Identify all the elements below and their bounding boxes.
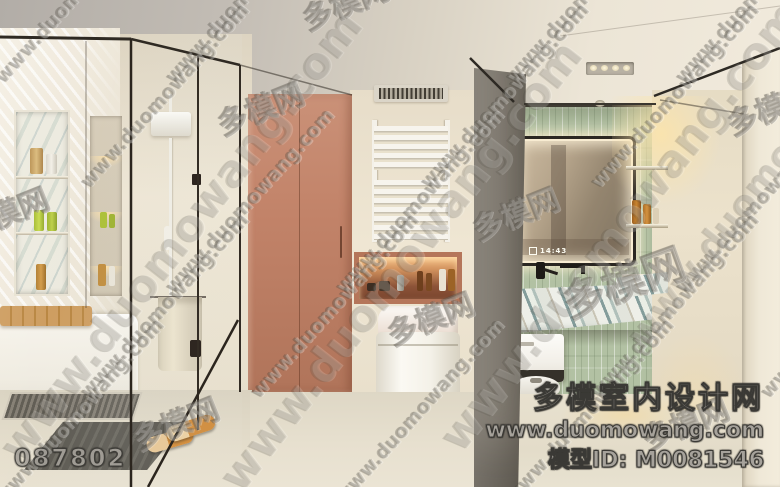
hanging-towel (158, 297, 202, 371)
radiator-bars-top (374, 126, 448, 170)
footer-site-block: 多模室内设计网 www.duomowang.com 模型ID: M0081546 (485, 382, 764, 476)
glass-shelf (626, 166, 668, 170)
niche-shelf (16, 232, 68, 235)
mirror-clock-time: 14:43 (540, 247, 567, 255)
amber-pump-bottle (36, 264, 46, 290)
spot-bulb (623, 65, 630, 71)
bathtub-wooden-tray (0, 306, 92, 326)
terracotta-cabinet (248, 94, 352, 392)
wall-niche-center (354, 252, 462, 304)
cabinet-handle-groove (340, 226, 342, 258)
green-bottle (100, 212, 107, 228)
rain-shower-head (151, 112, 191, 136)
ceiling-air-vent (374, 85, 448, 102)
pump-bottle (448, 269, 455, 291)
amber-bottle (30, 148, 43, 174)
wall-niche-reflected (90, 116, 122, 296)
faucet-spout-tip (581, 266, 585, 274)
floor-center (250, 392, 482, 487)
cream-bottle (653, 208, 659, 224)
vanity-mirror: 14:43 (512, 136, 636, 266)
vent-slats (379, 88, 443, 99)
amber-bottle (98, 264, 106, 286)
shower-slide-bar (169, 138, 172, 298)
mirror-clock-icon (529, 247, 537, 255)
linear-floor-drain (1, 392, 142, 420)
amber-bottle (643, 204, 651, 224)
perfume-bottle (46, 154, 57, 174)
soap-dispenser (397, 275, 404, 291)
mirror-clock: 14:43 (529, 247, 567, 255)
cabinet-door-seam (299, 94, 300, 392)
niche-glow-line (90, 156, 122, 166)
glass-door-hinge (192, 174, 201, 185)
amber-bottle (417, 271, 423, 291)
site-url: www.duomowang.com (485, 416, 764, 446)
bathroom-render: 14:43 (0, 0, 780, 487)
right-stone-wall (652, 90, 746, 424)
soap-pump (109, 266, 115, 286)
niche-glow-line (90, 266, 122, 276)
green-bottle (47, 212, 57, 231)
towel-radiator (372, 120, 450, 242)
niche-jar (379, 281, 390, 291)
amber-bottle (426, 273, 432, 291)
glass-shelf (626, 224, 668, 228)
niche-jar (367, 283, 376, 291)
image-number: 087802 (14, 444, 126, 472)
spot-bulb (601, 65, 608, 71)
amber-bottle (632, 200, 641, 224)
site-name: 多模室内设计网 (485, 382, 764, 416)
spot-bulb (612, 65, 619, 71)
glass-door-handle (190, 340, 201, 357)
linear-spotlights (586, 62, 634, 75)
model-id: 模型ID: M0081546 (485, 446, 764, 476)
radiator-bars-bottom (374, 180, 448, 240)
niche-shelf (16, 176, 68, 179)
handheld-shower (164, 226, 171, 250)
toilet-seam (378, 344, 458, 346)
spot-bulb (590, 65, 597, 71)
shower-pipe (169, 94, 172, 114)
round-downlight (595, 100, 605, 107)
pump-bottle (439, 269, 446, 291)
green-bottle (34, 210, 44, 231)
wall-niche-left (14, 110, 70, 296)
green-bottle (109, 214, 115, 228)
